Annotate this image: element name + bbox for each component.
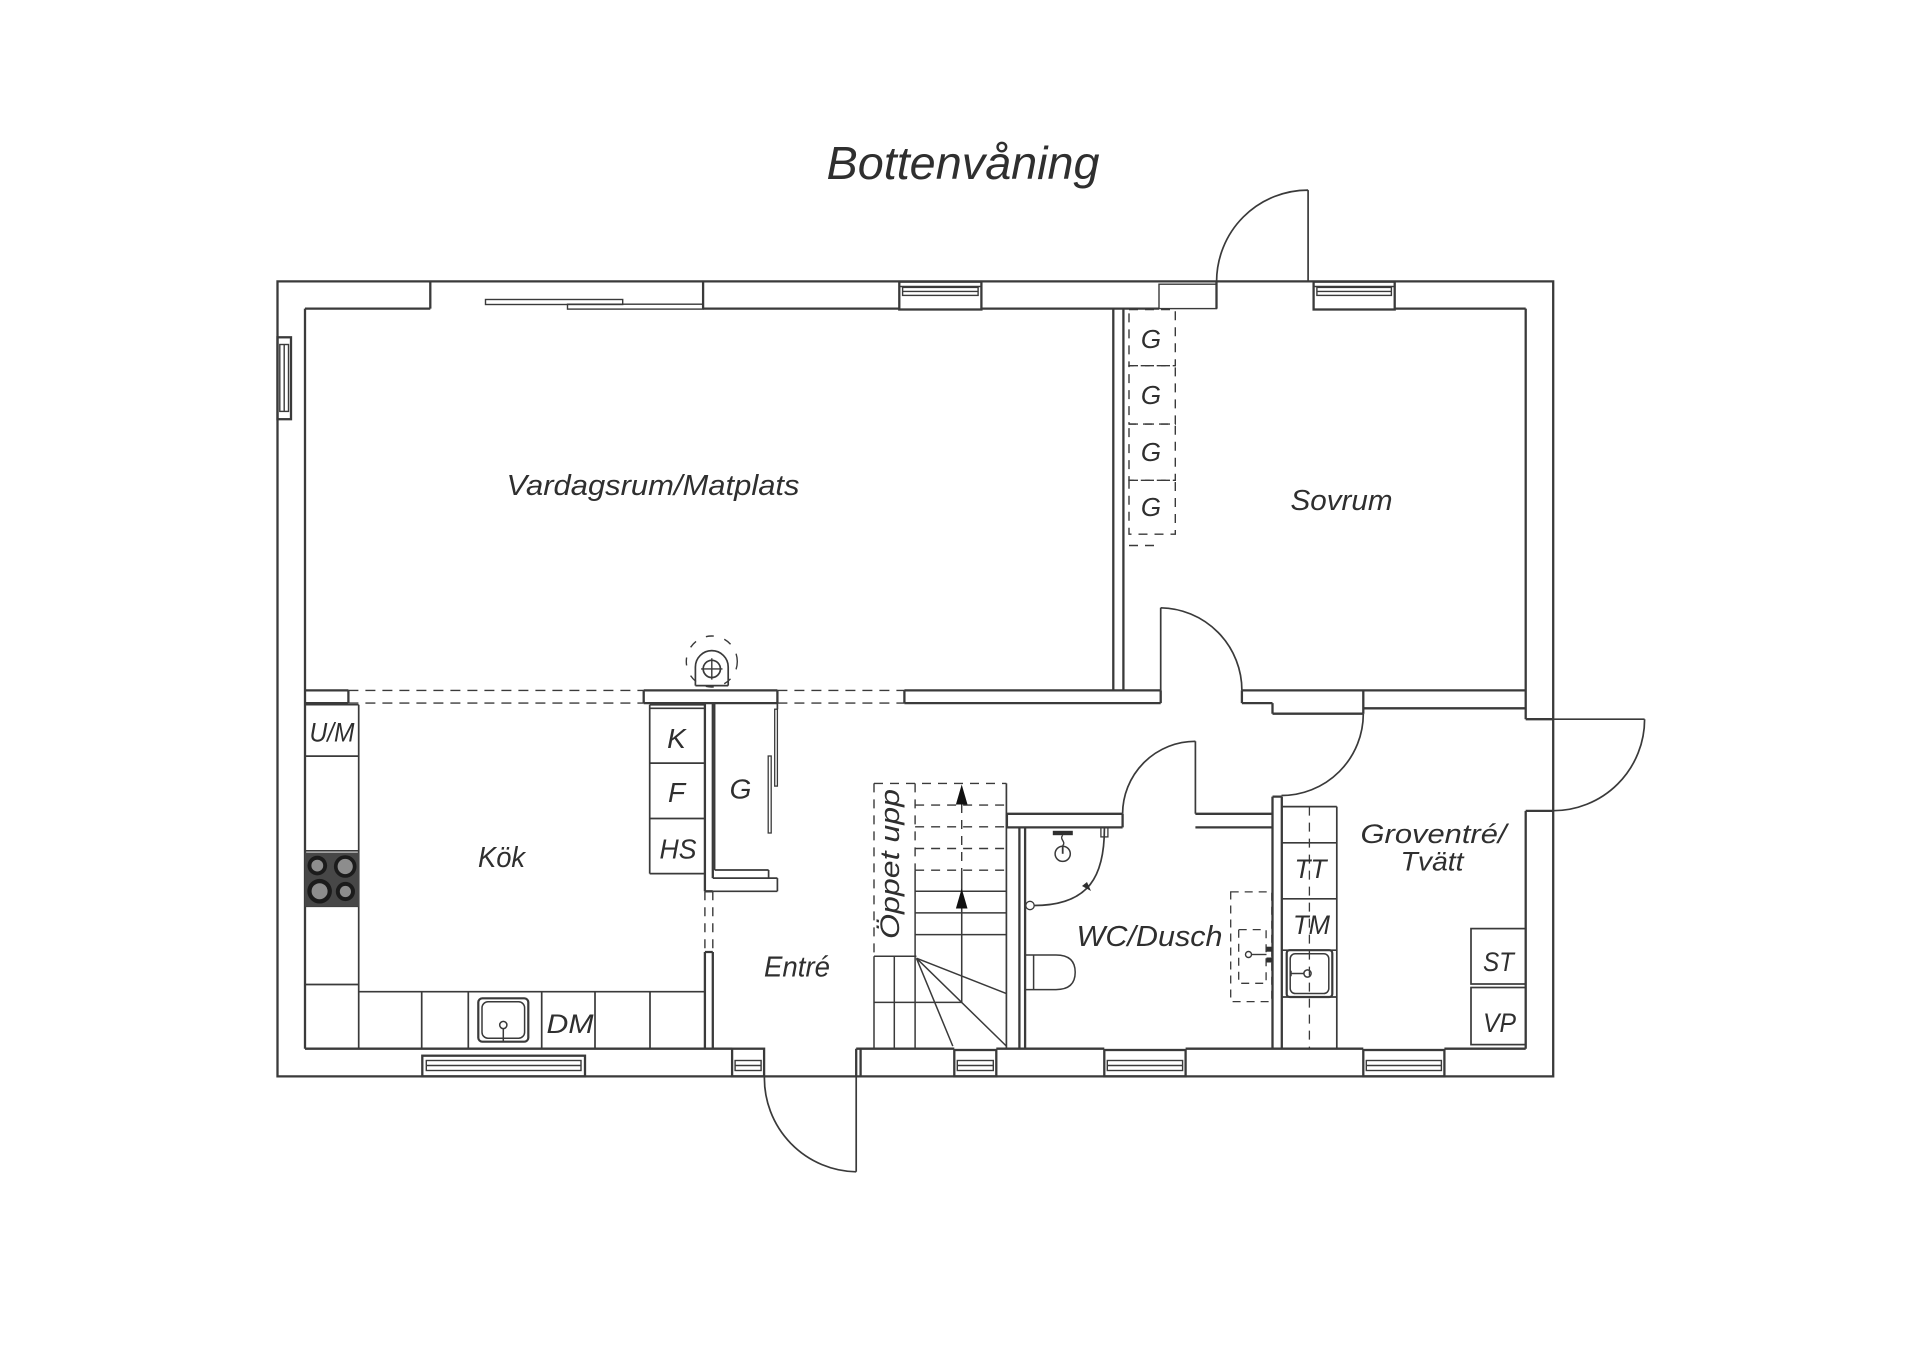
svg-text:K: K — [667, 723, 687, 754]
svg-text:HS: HS — [660, 834, 697, 865]
svg-text:G: G — [1141, 324, 1161, 354]
svg-text:Sovrum: Sovrum — [1291, 485, 1393, 517]
svg-text:Groventré/: Groventré/ — [1361, 819, 1510, 849]
svg-text:ST: ST — [1483, 947, 1516, 977]
svg-text:Bottenvåning: Bottenvåning — [827, 137, 1100, 189]
svg-text:Öppet upp: Öppet upp — [875, 789, 905, 939]
svg-text:Entré: Entré — [764, 952, 830, 984]
svg-text:G: G — [1141, 437, 1161, 467]
svg-text:G: G — [1141, 380, 1161, 410]
svg-text:DM: DM — [547, 1009, 595, 1039]
svg-text:Kök: Kök — [478, 842, 526, 874]
svg-text:WC/Dusch: WC/Dusch — [1077, 921, 1223, 953]
svg-text:U/M: U/M — [310, 718, 355, 748]
svg-text:Tvätt: Tvätt — [1401, 847, 1466, 877]
svg-text:G: G — [730, 774, 752, 805]
svg-text:F: F — [668, 777, 687, 808]
svg-text:TM: TM — [1293, 910, 1330, 940]
svg-text:TT: TT — [1295, 854, 1329, 884]
svg-text:G: G — [1141, 492, 1161, 522]
svg-text:Vardagsrum/Matplats: Vardagsrum/Matplats — [507, 470, 800, 502]
svg-text:VP: VP — [1483, 1008, 1516, 1038]
